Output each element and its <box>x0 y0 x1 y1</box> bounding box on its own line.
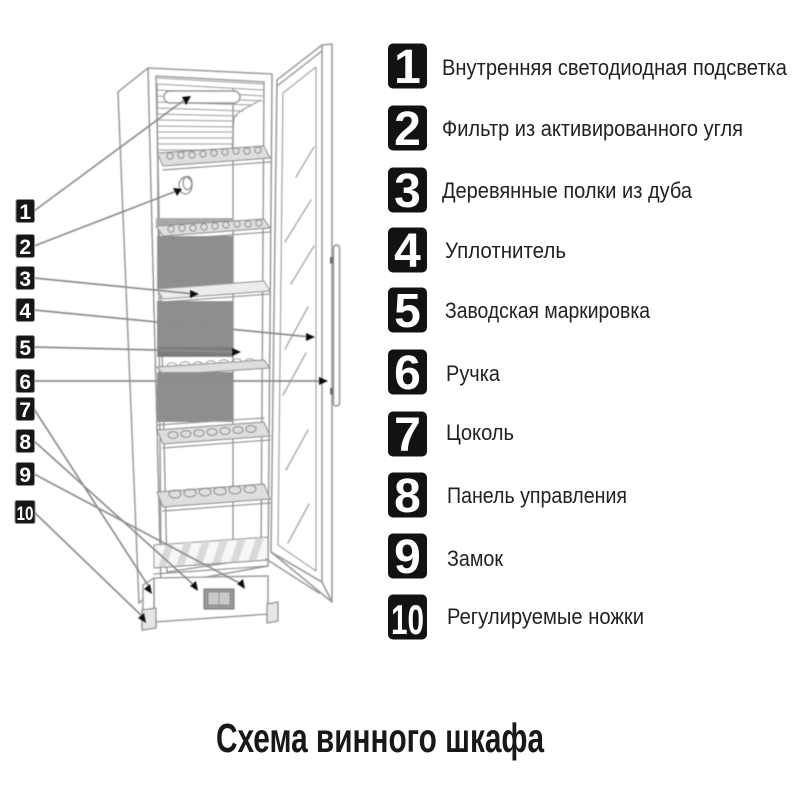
svg-text:9: 9 <box>19 464 31 487</box>
svg-text:2: 2 <box>394 103 421 156</box>
svg-text:7: 7 <box>19 399 31 422</box>
svg-text:Схема винного шкафа: Схема винного шкафа <box>216 715 545 761</box>
svg-text:Регулируемые ножки: Регулируемые ножки <box>447 604 644 629</box>
svg-text:Уплотнитель: Уплотнитель <box>445 238 566 263</box>
svg-text:2: 2 <box>19 236 31 259</box>
svg-text:1: 1 <box>394 41 421 94</box>
svg-text:Внутренняя светодиодная подсве: Внутренняя светодиодная подсветка <box>442 55 788 80</box>
svg-text:Заводская маркировка: Заводская маркировка <box>445 298 651 323</box>
svg-text:8: 8 <box>394 470 421 523</box>
svg-text:3: 3 <box>19 268 31 291</box>
svg-text:6: 6 <box>19 371 31 394</box>
svg-text:3: 3 <box>394 165 421 218</box>
svg-text:Замок: Замок <box>447 546 503 571</box>
svg-text:10: 10 <box>391 596 424 643</box>
svg-text:Панель управления: Панель управления <box>447 483 627 508</box>
svg-text:4: 4 <box>19 300 31 323</box>
svg-text:4: 4 <box>394 225 421 278</box>
svg-text:Ручка: Ручка <box>446 361 501 386</box>
svg-text:7: 7 <box>394 409 421 462</box>
svg-text:Цоколь: Цоколь <box>446 420 514 445</box>
svg-text:5: 5 <box>394 285 421 338</box>
svg-text:8: 8 <box>19 431 31 454</box>
svg-text:9: 9 <box>394 531 421 584</box>
svg-text:6: 6 <box>394 347 421 400</box>
svg-text:5: 5 <box>19 337 31 360</box>
svg-text:1: 1 <box>19 201 31 224</box>
svg-text:Фильтр из активированного угля: Фильтр из активированного угля <box>442 116 743 141</box>
svg-text:10: 10 <box>17 504 34 525</box>
svg-text:Деревянные полки из дуба: Деревянные полки из дуба <box>442 178 693 203</box>
